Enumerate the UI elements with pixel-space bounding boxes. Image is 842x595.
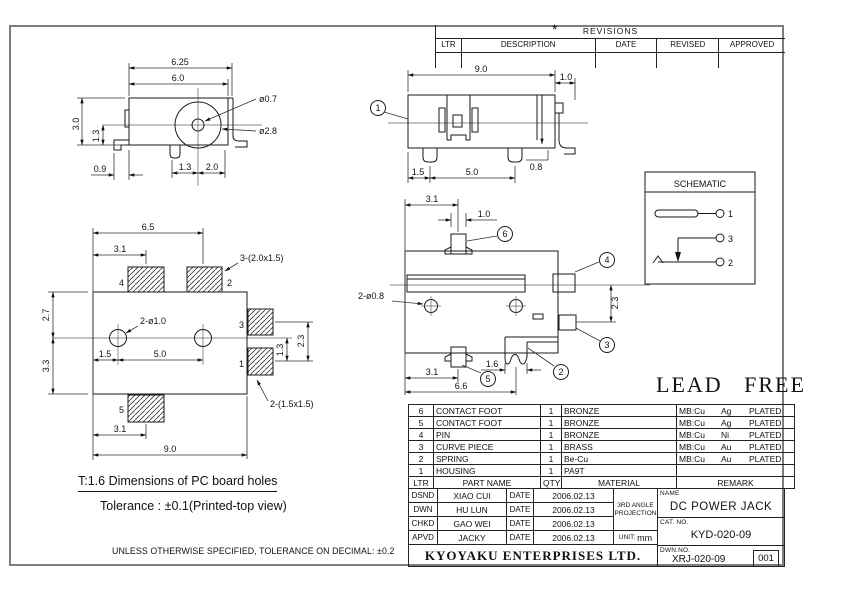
dim-bottom-spring: 1.6 bbox=[486, 359, 499, 369]
dim-pcb-upper: 2.7 bbox=[41, 309, 51, 322]
dim-pcb-hole-offset: 1.5 bbox=[99, 349, 112, 359]
revisions-col-approved: APPROVED bbox=[719, 39, 785, 52]
dim-front-outer-width: 6.25 bbox=[171, 57, 189, 67]
revisions-header-row: LTR DESCRIPTION DATE REVISED APPROVED bbox=[436, 39, 785, 53]
balloon-part5-number: 5 bbox=[485, 374, 490, 384]
unit-value: mm bbox=[637, 533, 652, 543]
unit-cell: UNIT: mm bbox=[614, 531, 658, 545]
bottom-geometry bbox=[405, 234, 576, 367]
dim-pcb-pad1: 1.3 bbox=[275, 344, 285, 357]
balloon-part1-number: 1 bbox=[375, 103, 380, 113]
asterisk-icon: * bbox=[552, 23, 557, 36]
dim-front-pin-right: 2.0 bbox=[206, 162, 219, 172]
label-pcb-holes: 2-ø1.0 bbox=[140, 316, 166, 326]
table-row: 5CONTACT FOOT 1BRONZE MB:CuAgPLATED bbox=[409, 417, 795, 429]
schematic-pin1-label: 1 bbox=[728, 209, 733, 219]
sheet-number-box: 001 bbox=[753, 550, 779, 566]
pcb-geometry bbox=[93, 267, 273, 422]
dim-front-body-width: 6.0 bbox=[172, 73, 185, 83]
dim-pcb-pad4: 3.1 bbox=[114, 244, 127, 254]
revisions-col-date: DATE bbox=[596, 39, 658, 52]
balloon-part4-number: 4 bbox=[604, 255, 609, 265]
approval-date-label: DATE bbox=[507, 531, 534, 545]
tolerance-note: Tolerance : ±0.1(Printed-top view) bbox=[100, 499, 287, 513]
pad-number-5: 5 bbox=[119, 405, 124, 415]
drawing-sheet: * REVISIONS LTR DESCRIPTION DATE REVISED… bbox=[0, 0, 842, 595]
dim-front-hole-small: ø0.7 bbox=[259, 94, 277, 104]
approval-date: 2006.02.13 bbox=[534, 503, 614, 517]
dim-side-flange: 1.0 bbox=[560, 72, 573, 82]
dim-front-pin-left: 1.3 bbox=[179, 162, 192, 172]
parts-header-row: LTRPART NAME QTYMATERIAL REMARK bbox=[409, 477, 795, 489]
revisions-col-description: DESCRIPTION bbox=[462, 39, 596, 52]
revisions-title-row: * REVISIONS bbox=[436, 25, 785, 39]
title-block: DSND XIAO CUI DATE 2006.02.13 DWN HU LUN… bbox=[408, 488, 785, 567]
cat-no: KYD-020-09 bbox=[691, 529, 752, 541]
pad-number-2: 2 bbox=[227, 278, 232, 288]
side-geometry bbox=[408, 95, 575, 162]
dim-front-height: 3.0 bbox=[71, 118, 81, 131]
company-name: KYOYAKU ENTERPRISES LTD. bbox=[425, 548, 641, 564]
schematic-pin3-label: 3 bbox=[728, 234, 733, 244]
approval-role: APVD bbox=[409, 531, 438, 545]
dwn-no-cell: DWN.NO. XRJ-020-09 001 bbox=[658, 546, 784, 566]
table-row: 3CURVE PIECE 1BRASS MB:CuAuPLATED bbox=[409, 441, 795, 453]
schematic-pin2-label: 2 bbox=[728, 258, 733, 268]
approval-date: 2006.02.13 bbox=[534, 531, 614, 545]
dim-side-width: 9.0 bbox=[475, 64, 488, 74]
pcb-view-drawing: 6.5 3.1 3-(2.0x1.5) 2.7 3.3 2-ø1.0 1.5 5… bbox=[35, 220, 345, 465]
pad-number-1: 1 bbox=[239, 359, 244, 369]
dim-pcb-lower: 3.3 bbox=[41, 360, 51, 373]
table-row: 2SPRING 1Be-Cu MB:CuAuPLATED bbox=[409, 453, 795, 465]
revisions-col-ltr: LTR bbox=[436, 39, 462, 52]
dim-front-hole-large: ø2.8 bbox=[259, 126, 277, 136]
front-dimensions bbox=[77, 63, 256, 180]
front-geometry bbox=[114, 98, 247, 158]
unit-label: UNIT: bbox=[619, 534, 635, 541]
approval-date: 2006.02.13 bbox=[534, 517, 614, 531]
label-bottom-holes: 2-ø0.8 bbox=[358, 291, 384, 301]
table-row: 4PIN 1BRONZE MB:CuNiPLATED bbox=[409, 429, 795, 441]
pcb-note: T:1.6 Dimensions of PC board holes bbox=[78, 474, 277, 492]
approval-date-label: DATE bbox=[507, 503, 534, 517]
company-cell: KYOYAKU ENTERPRISES LTD. bbox=[409, 545, 658, 566]
dim-front-foot: 0.9 bbox=[94, 164, 107, 174]
dim-pcb-total: 9.0 bbox=[164, 444, 177, 454]
schematic-panel: SCHEMATIC 1 3 2 bbox=[645, 170, 765, 288]
pad-number-4: 4 bbox=[119, 278, 124, 288]
approval-role: DSND bbox=[409, 489, 438, 503]
general-tolerance-note: UNLESS OTHERWISE SPECIFIED, TOLERANCE ON… bbox=[112, 546, 395, 556]
name-label: NAME bbox=[660, 490, 680, 497]
projection-line2: PROJECTION bbox=[615, 510, 657, 518]
label-pcb-right-pads: 2-(1.5x1.5) bbox=[270, 399, 314, 409]
approval-person: HU LUN bbox=[438, 503, 507, 517]
part-name-cell: NAME DC POWER JACK bbox=[658, 489, 784, 518]
approval-person: JACKY bbox=[438, 531, 507, 545]
approval-person: XIAO CUI bbox=[438, 489, 507, 503]
approval-date-label: DATE bbox=[507, 517, 534, 531]
front-view-drawing: 6.25 6.0 3.0 1.3 0.9 1.3 2.0 ø0.7 ø2.8 bbox=[55, 50, 305, 200]
approval-date-label: DATE bbox=[507, 489, 534, 503]
dim-bottom-foot5-offset: 3.1 bbox=[426, 367, 439, 377]
dwn-no-label: DWN.NO. bbox=[660, 547, 690, 554]
approval-role: CHKD bbox=[409, 517, 438, 531]
dim-bottom-side: 2.3 bbox=[610, 297, 620, 310]
balloon-part3-number: 3 bbox=[604, 340, 609, 350]
approval-person: GAO WEI bbox=[438, 517, 507, 531]
revisions-col-revised: REVISED bbox=[657, 39, 719, 52]
dwn-no: XRJ-020-09 bbox=[672, 554, 725, 565]
dim-bottom-tab-offset: 3.1 bbox=[426, 194, 439, 204]
dim-side-foot-pitch: 5.0 bbox=[466, 167, 479, 177]
dim-pcb-pad13-pitch: 2.3 bbox=[296, 335, 306, 348]
dim-pcb-pad5: 3.1 bbox=[114, 424, 127, 434]
schematic-title: SCHEMATIC bbox=[674, 179, 727, 189]
revisions-title: REVISIONS bbox=[583, 26, 638, 36]
dim-pcb-hole-pitch: 5.0 bbox=[154, 349, 167, 359]
approval-role: DWN bbox=[409, 503, 438, 517]
table-row: 1HOUSING 1PA9T bbox=[409, 465, 795, 477]
dim-side-slot: 0.8 bbox=[530, 162, 543, 172]
approval-date: 2006.02.13 bbox=[534, 489, 614, 503]
balloon-part2-number: 2 bbox=[558, 367, 563, 377]
dim-bottom-tab-width: 1.0 bbox=[478, 209, 491, 219]
lead-free-label: LEAD FREE bbox=[656, 372, 806, 398]
dim-pcb-pad2: 6.5 bbox=[142, 222, 155, 232]
cat-no-cell: CAT. NO. KYD-020-09 bbox=[658, 518, 784, 546]
dim-side-foot-offset: 1.5 bbox=[412, 167, 425, 177]
bottom-view-drawing: 6 4 3 2 5 3.1 1.0 2-ø0.8 2.3 1.6 3.1 6.6 bbox=[350, 195, 660, 400]
pad-number-3: 3 bbox=[239, 320, 244, 330]
dim-bottom-total: 6.6 bbox=[455, 381, 468, 391]
label-pcb-top-pads: 3-(2.0x1.5) bbox=[240, 253, 284, 263]
side-view-drawing: 1 9.0 1.0 0.8 1.5 5.0 bbox=[360, 60, 620, 190]
projection-line1: 3RD ANGLE bbox=[617, 502, 654, 510]
part-name: DC POWER JACK bbox=[670, 501, 772, 513]
dim-front-lower-height: 1.3 bbox=[91, 130, 101, 143]
balloon-part6-number: 6 bbox=[502, 229, 507, 239]
table-row: 6CONTACT FOOT 1BRONZE MB:CuAgPLATED bbox=[409, 405, 795, 417]
projection-cell: 3RD ANGLE PROJECTION bbox=[614, 489, 658, 531]
cat-no-label: CAT. NO. bbox=[660, 519, 689, 526]
schematic-symbols bbox=[653, 210, 724, 267]
parts-table: 6CONTACT FOOT 1BRONZE MB:CuAgPLATED 5CON… bbox=[408, 404, 795, 489]
